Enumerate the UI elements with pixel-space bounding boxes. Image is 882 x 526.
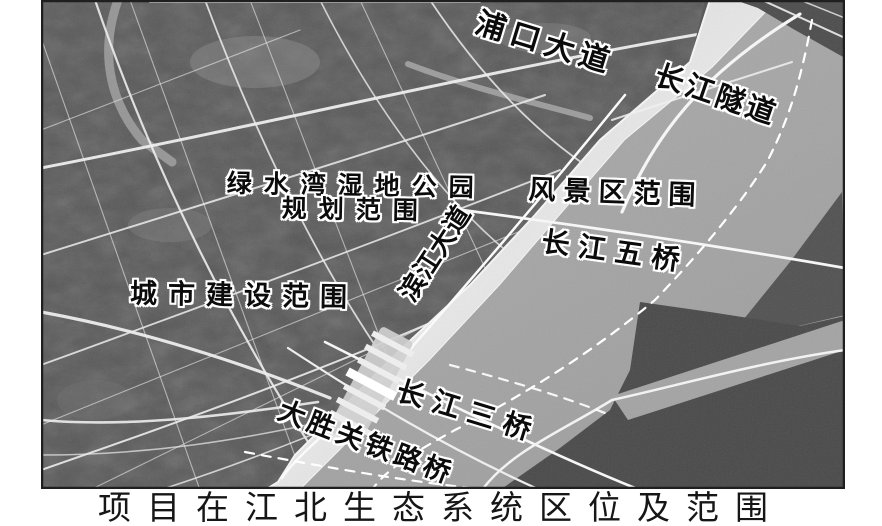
figure: 浦口大道 长江隧道 绿水湾湿地公园 规划范围 风景区范围 滨江大道 长江五桥 城… [0,0,882,526]
label-scenic-area-scope: 风景区范围 [528,176,704,209]
figure-caption: 项目在江北生态系统区位及范围 [0,491,882,526]
label-urban-construction: 城市建设范围 [130,281,358,312]
